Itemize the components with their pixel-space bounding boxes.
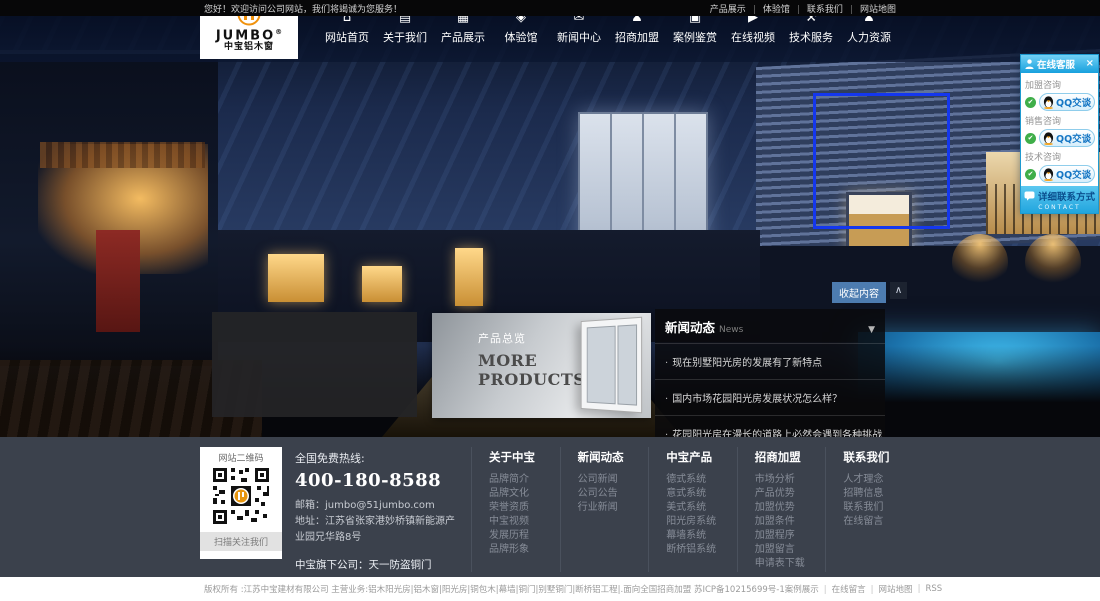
products-banner[interactable]: 产品总览 MORE PRODUCTS	[432, 313, 651, 418]
news-title: 新闻动态	[665, 317, 715, 336]
bottom-link[interactable]: 在线留言	[819, 583, 866, 595]
news-item[interactable]: 现在别墅阳光房的发展有了新特点	[655, 343, 885, 379]
footer-column-title: 关于中宝	[489, 449, 546, 465]
footer-link[interactable]: 加盟优势	[755, 501, 812, 515]
topbar-links: 产品展示体验馆联系我们网站地图	[710, 2, 896, 15]
qq-penguin-icon	[1043, 132, 1054, 145]
products-banner-dark-panel[interactable]	[212, 312, 417, 417]
bottom-link[interactable]: 案例展示	[785, 583, 819, 595]
qq-penguin-icon	[1043, 168, 1054, 181]
footer-link[interactable]: 美式系统	[666, 501, 723, 515]
footer-link[interactable]: 市场分析	[755, 473, 812, 487]
news-item[interactable]: 花园阳光房在漫长的道路上必然会遇到各种挑战	[655, 415, 885, 437]
footer-link[interactable]: 品牌形象	[489, 543, 546, 557]
contact-detail-label: 详细联系方式	[1038, 189, 1095, 203]
online-service-body: 加盟咨询 ✔ QQ交谈 销售咨询	[1021, 73, 1098, 186]
qr-card: 网站二维码 扫	[200, 447, 282, 559]
nav-item-label: 新闻中心	[550, 29, 608, 45]
nav-item-label: 案例鉴赏	[666, 29, 724, 45]
news-item[interactable]: 国内市场花园阳光房发展状况怎么样？	[655, 379, 885, 415]
qq-group: 加盟咨询 ✔ QQ交谈	[1025, 78, 1094, 111]
topbar-link[interactable]: 联系我们	[790, 2, 843, 15]
hero-photo: 产品总览 MORE PRODUCTS 收起内容 ∧ 新闻动态 News ▼ 现在…	[0, 16, 1100, 437]
footer-link[interactable]: 品牌文化	[489, 487, 546, 501]
nav-item-label: 体验馆	[492, 29, 550, 45]
chat-bubble-icon	[1024, 191, 1035, 201]
nav-item-label: 关于我们	[376, 29, 434, 45]
footer-link[interactable]: 阳光房系统	[666, 515, 723, 529]
contact-address: 地址：江苏省张家港妙桥镇新能源产业园兄华路8号	[295, 514, 457, 546]
footer-link[interactable]: 行业新闻	[578, 501, 635, 515]
red-accent-wall	[96, 230, 140, 332]
news-subtitle: News	[719, 325, 743, 335]
qq-penguin-icon	[1043, 96, 1054, 109]
topbar-link[interactable]: 产品展示	[710, 2, 746, 15]
footer-column-news: 新闻动态 公司新闻公司公告行业新闻	[560, 447, 635, 572]
chevron-down-icon[interactable]: ▼	[868, 325, 875, 335]
qq-group: 技术咨询 ✔ QQ交谈	[1025, 150, 1094, 183]
downlight-glow	[1025, 234, 1081, 290]
footer-link[interactable]: 荣誉资质	[489, 501, 546, 515]
footer-link[interactable]: 人才理念	[843, 473, 900, 487]
footer-column-products: 中宝产品 德式系统意式系统美式系统阳光房系统幕墙系统断桥铝系统	[648, 447, 723, 572]
nav-item-label: 产品展示	[434, 29, 492, 45]
footer-column-contact: 联系我们 人才理念招聘信息联系我们在线留言	[825, 447, 900, 572]
bottom-bar: 版权所有 :江苏中宝建材有限公司 主营业务:铝木阳光房|铝木窗|阳光房|铜包木|…	[0, 577, 1100, 601]
lit-window	[268, 254, 324, 302]
qr-title: 网站二维码	[200, 447, 282, 466]
online-service-panel: 在线客服 × 加盟咨询 ✔ QQ交谈	[1020, 54, 1099, 214]
footer-link[interactable]: 加盟程序	[755, 529, 812, 543]
footer-link[interactable]: 在线留言	[843, 515, 900, 529]
subsidiary-company: 中宝旗下公司：天一防盗铜门	[295, 557, 457, 572]
window-product-image	[581, 317, 642, 414]
bottom-link[interactable]: RSS	[913, 584, 943, 594]
footer-link[interactable]: 品牌简介	[489, 473, 546, 487]
qq-chat-button[interactable]: QQ交谈	[1039, 165, 1095, 183]
online-service-title: 在线客服	[1037, 57, 1075, 71]
news-panel: 新闻动态 News ▼ 现在别墅阳光房的发展有了新特点国内市场花园阳光房发展状况…	[655, 309, 885, 437]
footer: 网站二维码 扫	[0, 437, 1100, 577]
news-list: 现在别墅阳光房的发展有了新特点国内市场花园阳光房发展状况怎么样？花园阳光房在漫长…	[655, 343, 885, 437]
qq-group-label: 技术咨询	[1025, 150, 1094, 163]
footer-link[interactable]: 德式系统	[666, 473, 723, 487]
nav-item-label: 人力资源	[840, 29, 898, 45]
footer-link[interactable]: 公司公告	[578, 487, 635, 501]
qq-chat-button[interactable]: QQ交谈	[1039, 93, 1095, 111]
footer-link[interactable]: 招聘信息	[843, 487, 900, 501]
footer-link[interactable]: 加盟条件	[755, 515, 812, 529]
copyright-text: 版权所有 :江苏中宝建材有限公司 主营业务:铝木阳光房|铝木窗|阳光房|铜包木|…	[204, 583, 785, 595]
footer-column-franchise: 招商加盟 市场分析产品优势加盟优势加盟条件加盟程序加盟留言申请表下载	[737, 447, 812, 572]
blue-highlight-box	[813, 93, 950, 229]
close-icon[interactable]: ×	[1086, 59, 1094, 69]
top-bar: 您好！欢迎访问公司网站，我们将竭诚为您服务！ 产品展示体验馆联系我们网站地图	[0, 0, 1100, 16]
qr-code	[211, 466, 271, 526]
news-header: 新闻动态 News ▼	[655, 309, 885, 343]
footer-link[interactable]: 加盟留言	[755, 543, 812, 557]
bottom-link[interactable]: 网站地图	[866, 583, 913, 595]
contact-detail-button[interactable]: 详细联系方式 CONTACT	[1021, 186, 1098, 213]
footer-column-title: 招商加盟	[755, 449, 812, 465]
hotline-number: 400-180-8588	[295, 470, 457, 491]
nav-item-label: 技术服务	[782, 29, 840, 45]
online-status-icon: ✔	[1025, 169, 1036, 180]
footer-column-about: 关于中宝 品牌简介品牌文化荣誉资质中宝视频发展历程品牌形象	[471, 447, 546, 572]
qq-group: 销售咨询 ✔ QQ交谈	[1025, 114, 1094, 147]
nav-item-label: 招商加盟	[608, 29, 666, 45]
footer-link[interactable]: 申请表下载	[755, 557, 812, 571]
footer-link[interactable]: 意式系统	[666, 487, 723, 501]
wood-ceiling	[40, 142, 205, 168]
footer-link[interactable]: 幕墙系统	[666, 529, 723, 543]
footer-column-title: 新闻动态	[578, 449, 635, 465]
footer-column-title: 联系我们	[843, 449, 900, 465]
nav-item-label: 网站首页	[318, 29, 376, 45]
qq-group-label: 加盟咨询	[1025, 78, 1094, 91]
contact-email: 邮箱：jumbo@51jumbo.com	[295, 498, 457, 514]
online-status-icon: ✔	[1025, 133, 1036, 144]
footer-link[interactable]: 产品优势	[755, 487, 812, 501]
lit-window	[455, 248, 483, 306]
online-service-header: 在线客服 ×	[1021, 55, 1098, 73]
footer-link[interactable]: 中宝视频	[489, 515, 546, 529]
footer-columns: 关于中宝 品牌简介品牌文化荣誉资质中宝视频发展历程品牌形象 新闻动态 公司新闻公…	[457, 447, 900, 572]
logo-subtitle: 中宝铝木窗	[224, 42, 274, 53]
nav-item-label: 在线视频	[724, 29, 782, 45]
footer-column-title: 中宝产品	[666, 449, 723, 465]
collapse-control: 收起内容 ∧	[832, 282, 907, 303]
footer-link[interactable]: 公司新闻	[578, 473, 635, 487]
downlight-glow	[952, 234, 1008, 290]
topbar-link[interactable]: 网站地图	[843, 2, 896, 15]
collapse-content-button[interactable]: 收起内容	[832, 282, 886, 303]
hotline-label: 全国免费热线:	[295, 450, 457, 466]
person-icon	[1025, 59, 1034, 69]
footer-link[interactable]: 断桥铝系统	[666, 543, 723, 557]
qq-chat-button[interactable]: QQ交谈	[1039, 129, 1095, 147]
footer-link[interactable]: 联系我们	[843, 501, 900, 515]
lit-window	[362, 266, 402, 302]
qr-caption: 扫描关注我们	[200, 532, 282, 551]
online-status-icon: ✔	[1025, 97, 1036, 108]
footer-contact: 全国免费热线: 400-180-8588 邮箱：jumbo@51jumbo.co…	[295, 447, 457, 572]
collapse-arrow-icon[interactable]: ∧	[890, 282, 907, 299]
qq-group-label: 销售咨询	[1025, 114, 1094, 127]
topbar-link[interactable]: 体验馆	[746, 2, 790, 15]
footer-link[interactable]: 发展历程	[489, 529, 546, 543]
bottom-links: 案例展示在线留言网站地图RSS	[785, 583, 942, 595]
logo-name: JUMBO®	[216, 26, 282, 42]
contact-detail-sub: CONTACT	[1021, 204, 1098, 211]
welcome-text: 您好！欢迎访问公司网站，我们将竭诚为您服务！	[204, 2, 402, 15]
